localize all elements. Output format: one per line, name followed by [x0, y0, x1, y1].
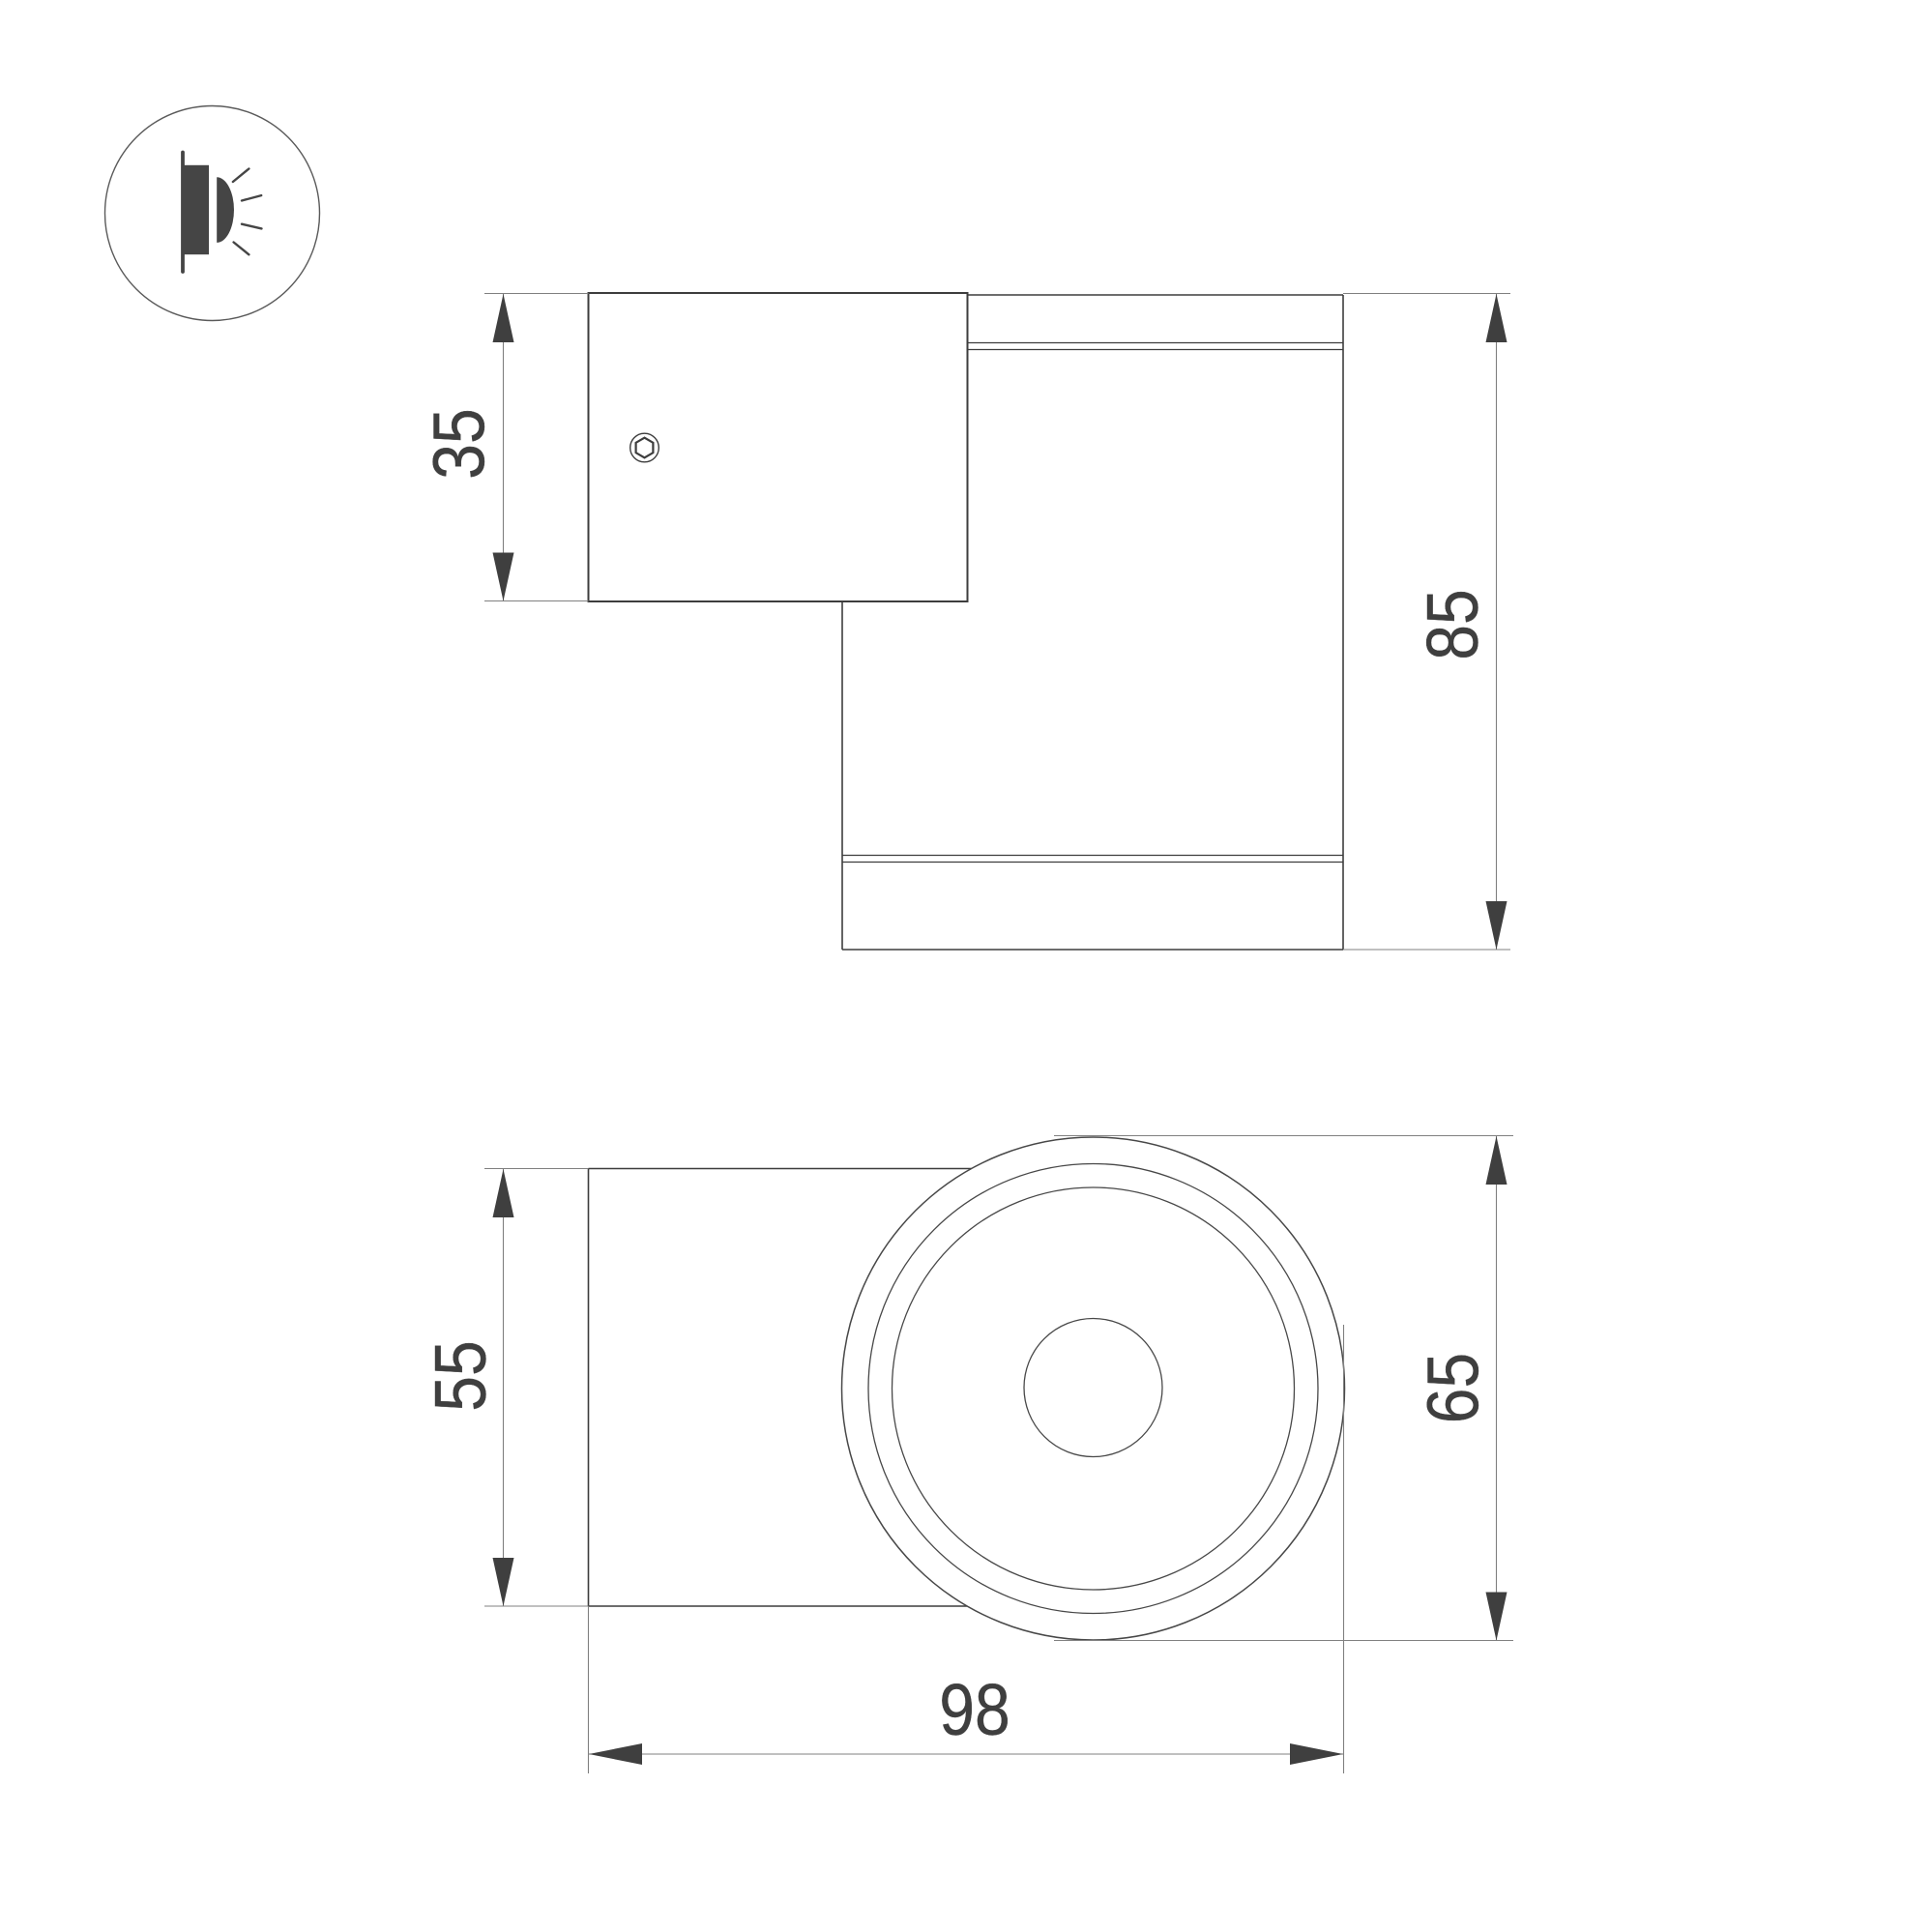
svg-text:35: 35	[419, 408, 500, 479]
svg-text:85: 85	[1412, 589, 1493, 659]
svg-text:55: 55	[420, 1340, 501, 1411]
svg-text:65: 65	[1413, 1353, 1494, 1423]
svg-text:98: 98	[939, 1669, 1010, 1750]
